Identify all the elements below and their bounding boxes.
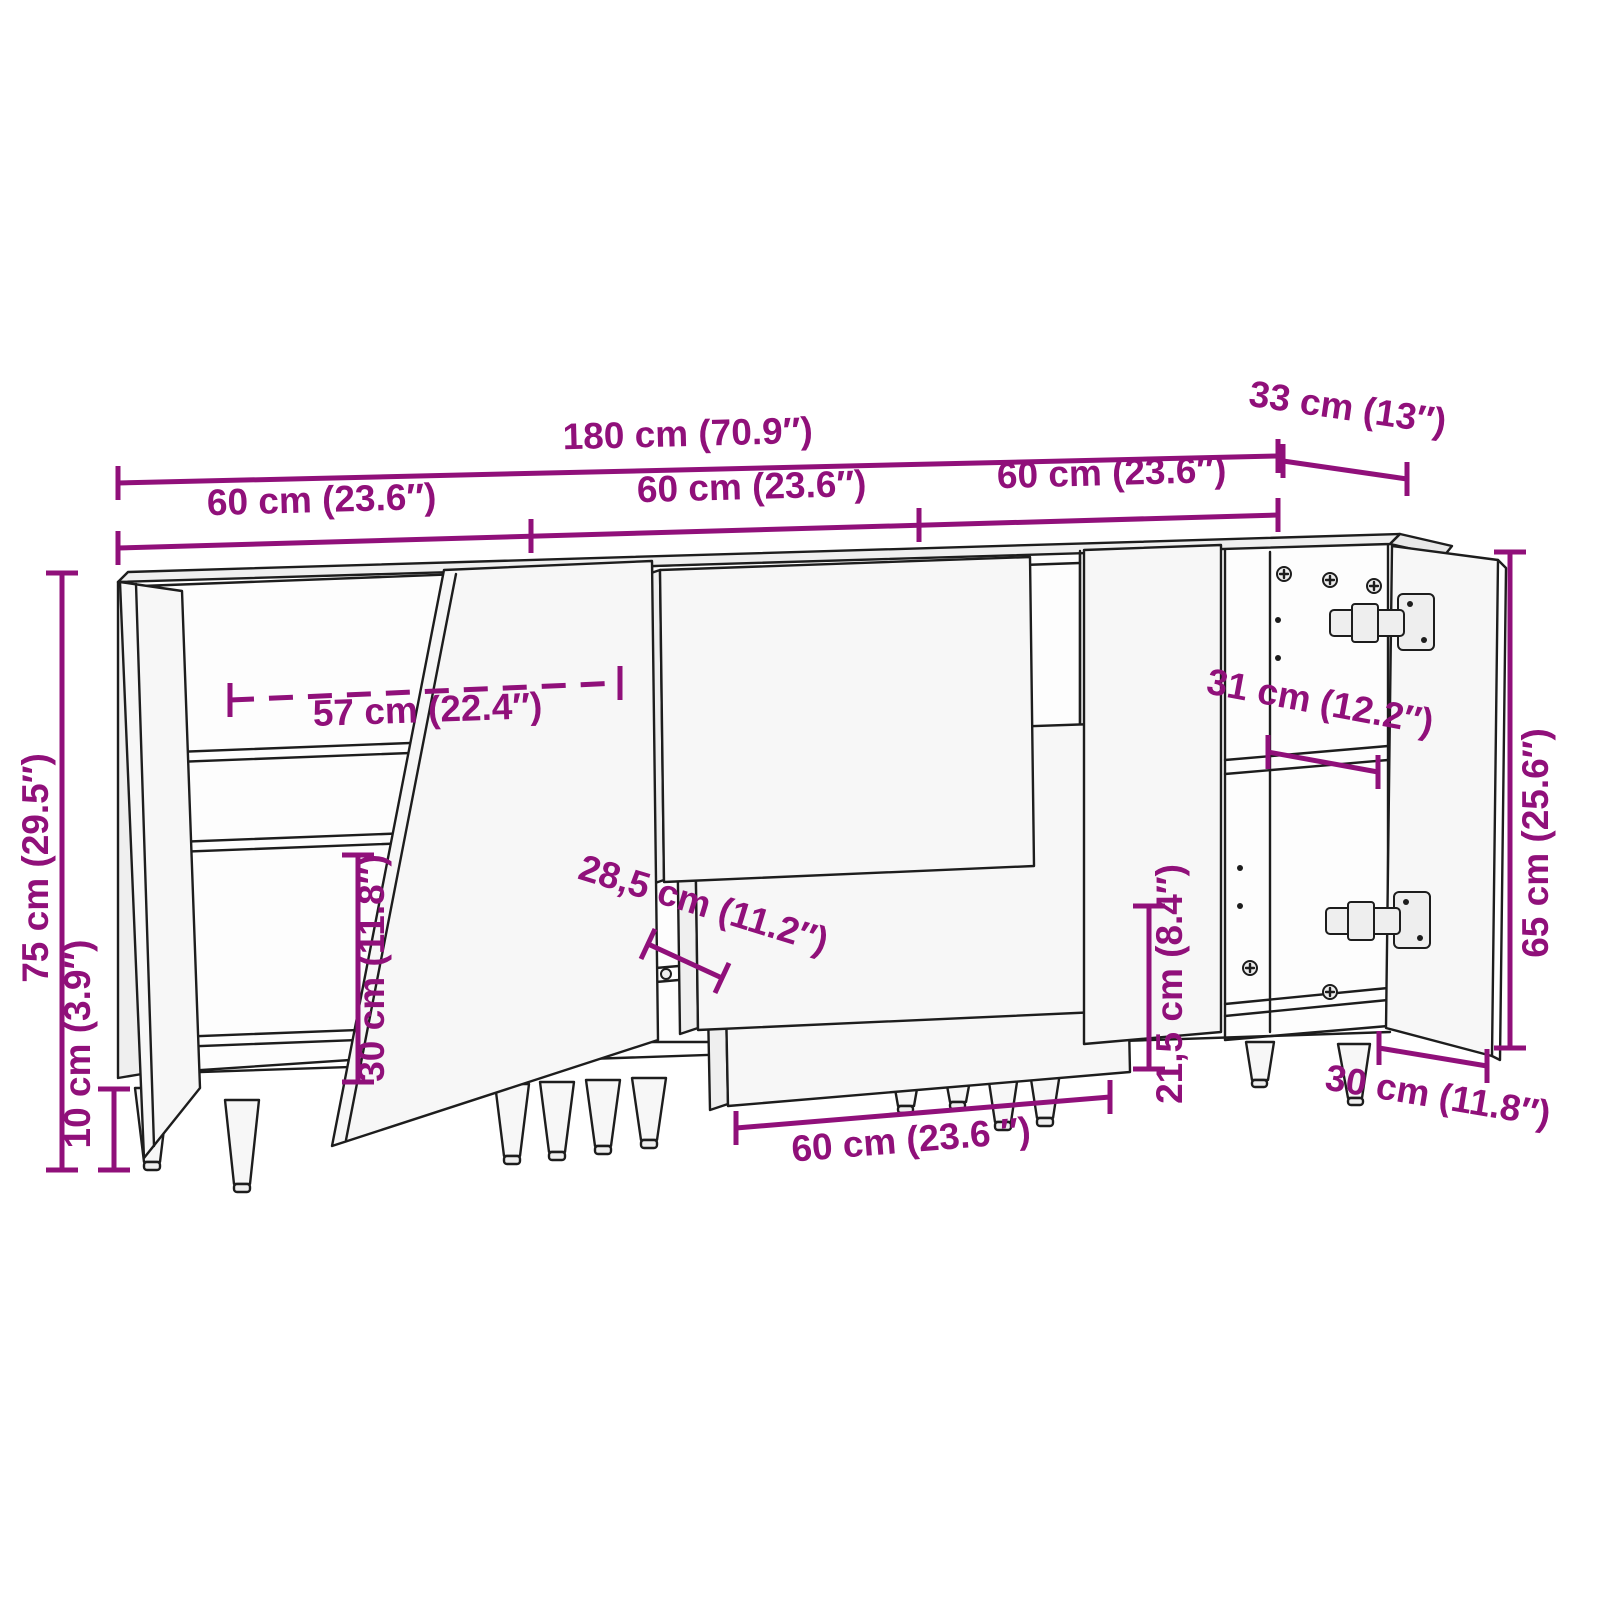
dim-label-leg-height: 10 cm (3.9″) bbox=[57, 940, 98, 1149]
dim-label-section-right: 60 cm (23.6″) bbox=[996, 449, 1227, 496]
dim-depth: 33 cm (13″) bbox=[1247, 373, 1450, 496]
dim-label-body-height: 65 cm (25.6″) bbox=[1515, 728, 1556, 958]
dim-label-total-height: 75 cm (29.5″) bbox=[15, 753, 56, 983]
dim-label-interior-width: 57 cm (22.4″) bbox=[312, 685, 543, 734]
dim-label-right-compartment: 21,5 cm (8.4″) bbox=[1149, 864, 1190, 1104]
sideboard-line-drawing: 180 cm (70.9″) 33 cm (13″) 60 cm (23.6″)… bbox=[0, 0, 1600, 1600]
dim-label-total-width: 180 cm (70.9″) bbox=[562, 410, 813, 458]
dim-label-door-width: 30 cm (11.8″) bbox=[1322, 1057, 1553, 1135]
dim-label-left-compartment: 30 cm (11.8″) bbox=[351, 854, 392, 1082]
drawer-top bbox=[642, 557, 1034, 886]
dim-label-depth: 33 cm (13″) bbox=[1247, 373, 1450, 442]
sideboard bbox=[118, 534, 1506, 1192]
dim-label-section-middle: 60 cm (23.6″) bbox=[636, 463, 867, 510]
dim-label-section-left: 60 cm (23.6″) bbox=[206, 476, 437, 523]
furniture-dimension-diagram: 180 cm (70.9″) 33 cm (13″) 60 cm (23.6″)… bbox=[0, 0, 1600, 1600]
